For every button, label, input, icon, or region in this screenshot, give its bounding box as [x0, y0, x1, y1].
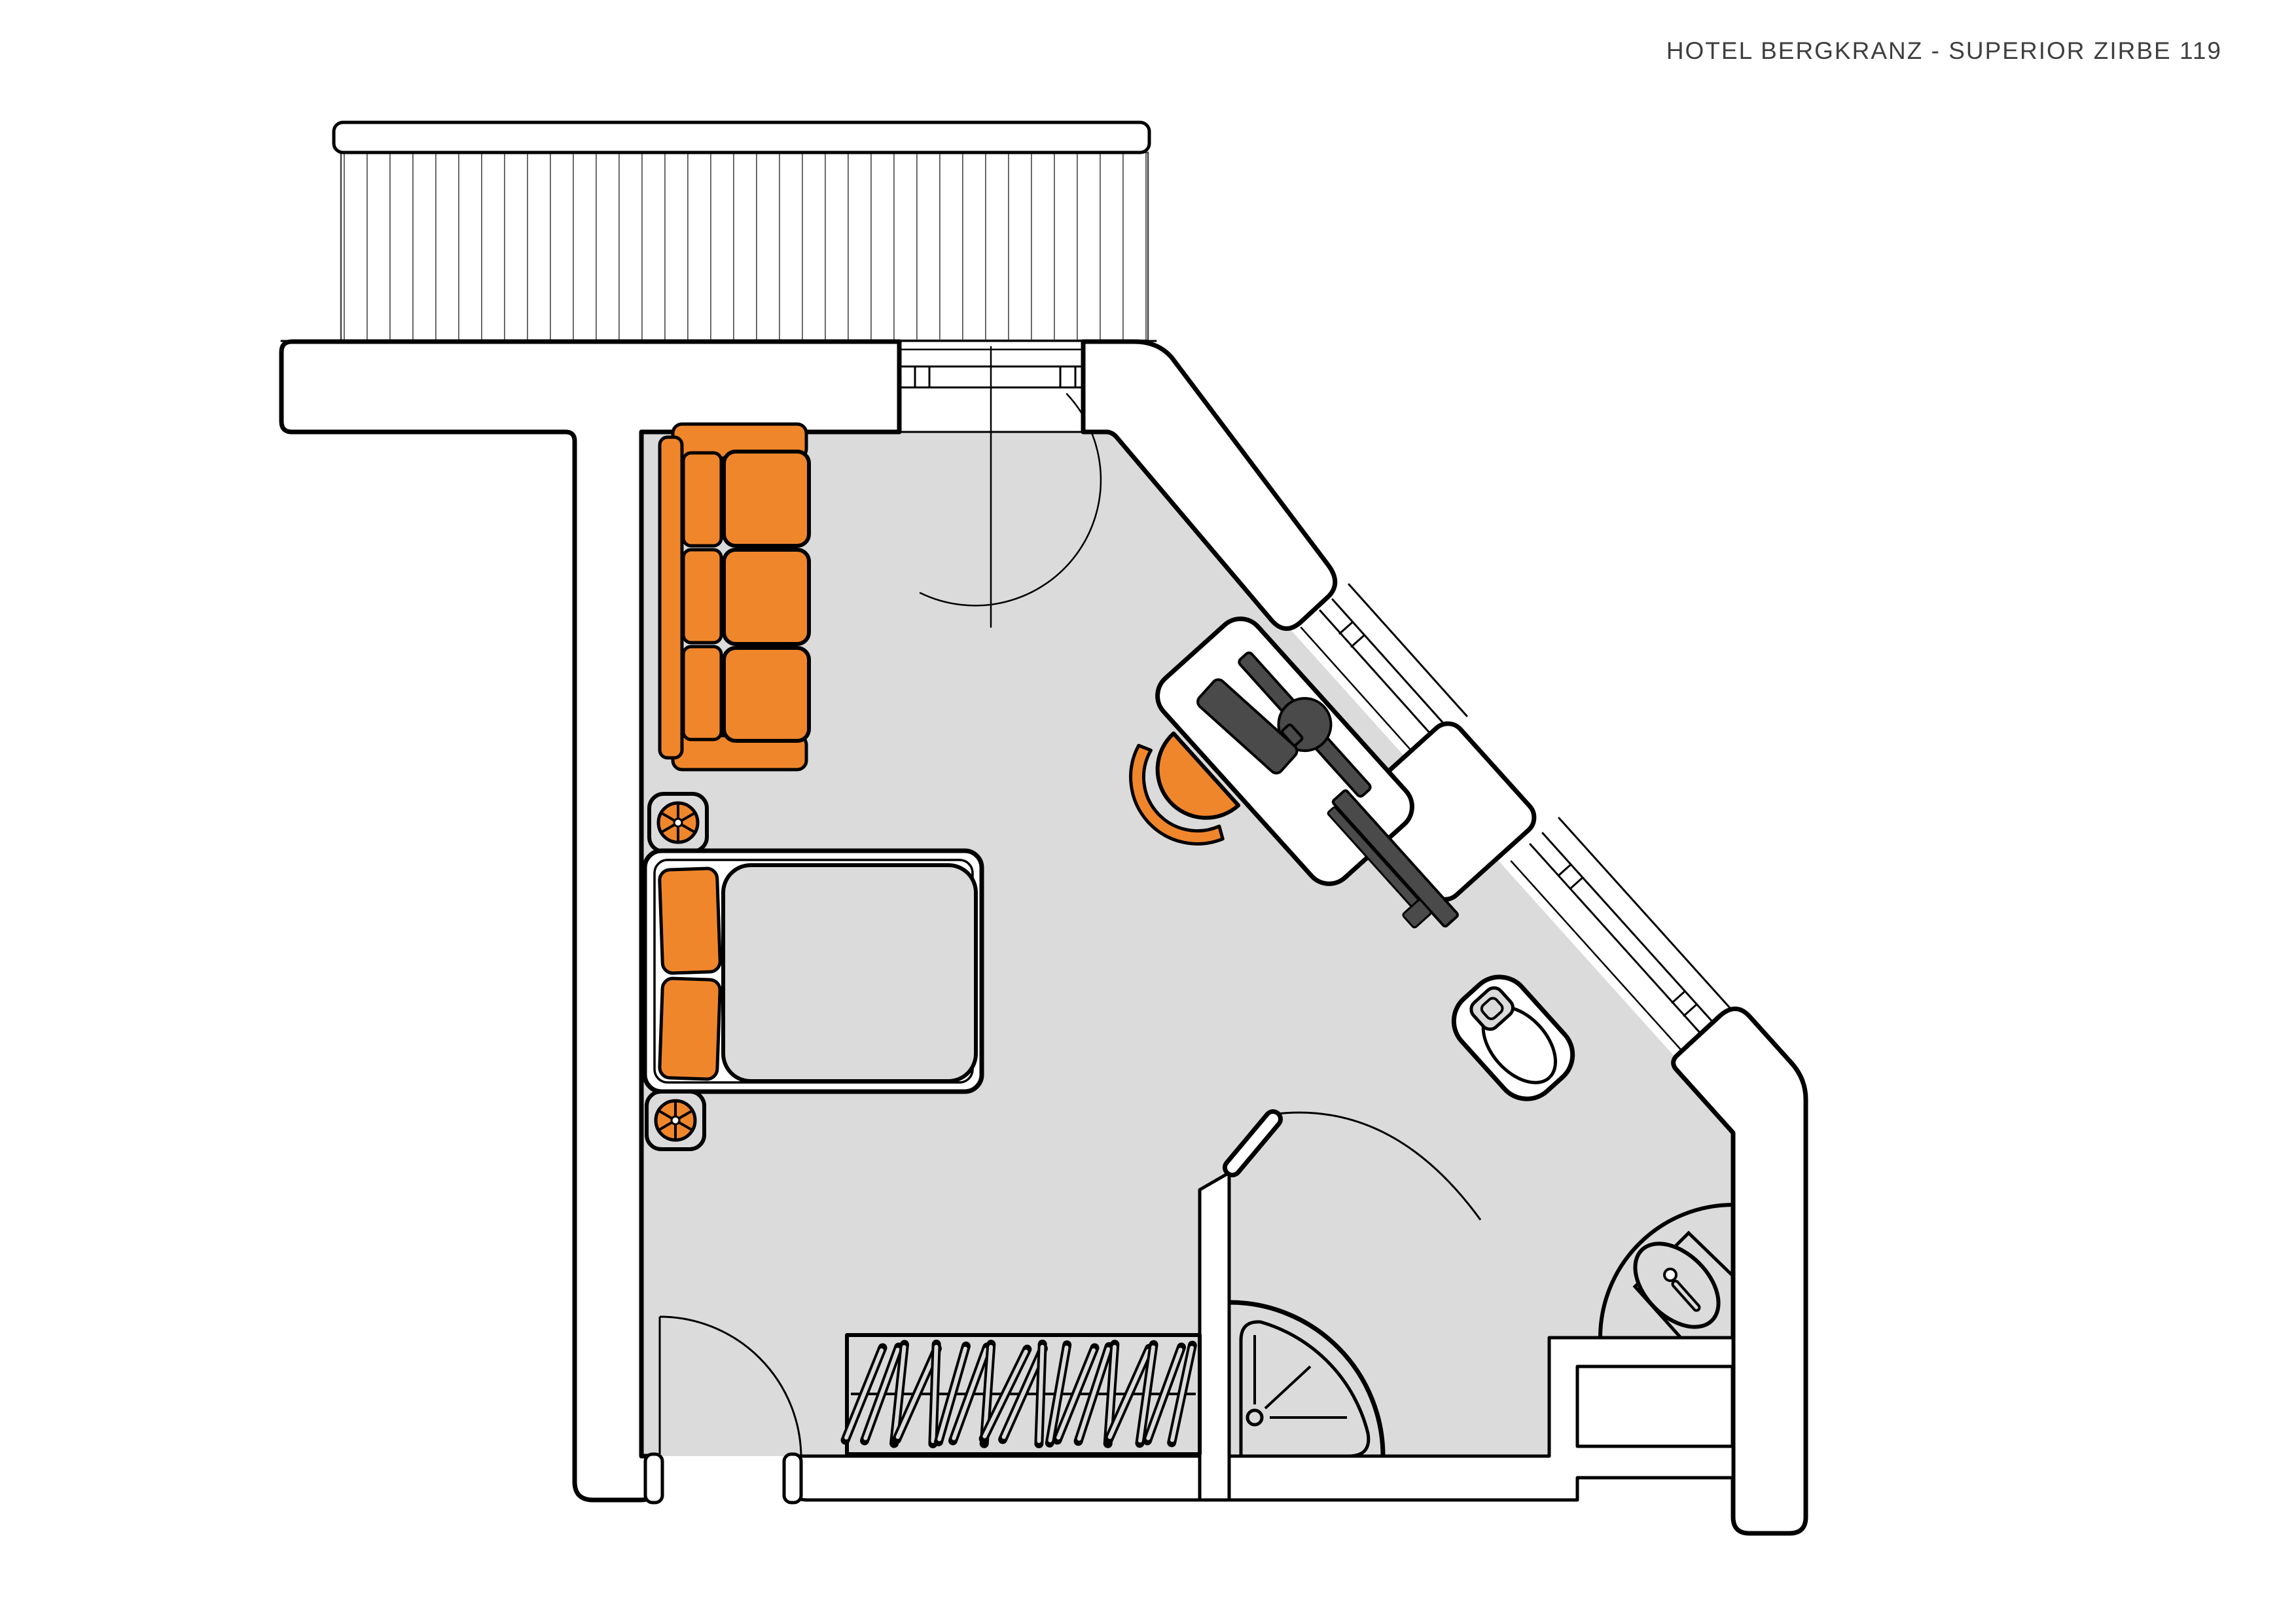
- sofa-back-panel: [660, 437, 682, 758]
- sofa-seat-cushion: [724, 452, 809, 546]
- sofa-back-cushion: [683, 453, 721, 546]
- floorplan-page: HOTEL BERGKRANZ - SUPERIOR ZIRBE 119: [0, 0, 2296, 1623]
- sofa-seat-cushion: [724, 550, 809, 644]
- sofa-seat-cushion: [724, 648, 809, 741]
- balcony-railing: [334, 122, 1149, 152]
- bed-duvet: [723, 865, 976, 1081]
- sofa: [660, 424, 809, 770]
- wall-bottom-main: [789, 1456, 1200, 1500]
- balcony: [281, 122, 1156, 341]
- nightstand-lower: [647, 1092, 704, 1149]
- ceiling-lamp-icon: [658, 803, 698, 842]
- sofa-back-cushion: [683, 647, 721, 740]
- wardrobe: [846, 1335, 1200, 1454]
- bed: [645, 851, 982, 1092]
- nightstand-upper: [649, 794, 707, 851]
- entry-door-jamb-left: [645, 1454, 662, 1503]
- balcony-decking: [341, 152, 1148, 340]
- ceiling-lamp-icon: [656, 1101, 695, 1140]
- floorplan-drawing: HOTEL BERGKRANZ - SUPERIOR ZIRBE 119: [0, 0, 2296, 1623]
- page-title: HOTEL BERGKRANZ - SUPERIOR ZIRBE 119: [1666, 37, 2222, 64]
- entry-door-jamb-right: [784, 1454, 801, 1503]
- bed-pillow: [659, 868, 720, 974]
- sofa-back-cushion: [683, 550, 721, 643]
- wall-bathroom-partition: [1200, 1173, 1229, 1500]
- bed-pillow: [659, 978, 720, 1080]
